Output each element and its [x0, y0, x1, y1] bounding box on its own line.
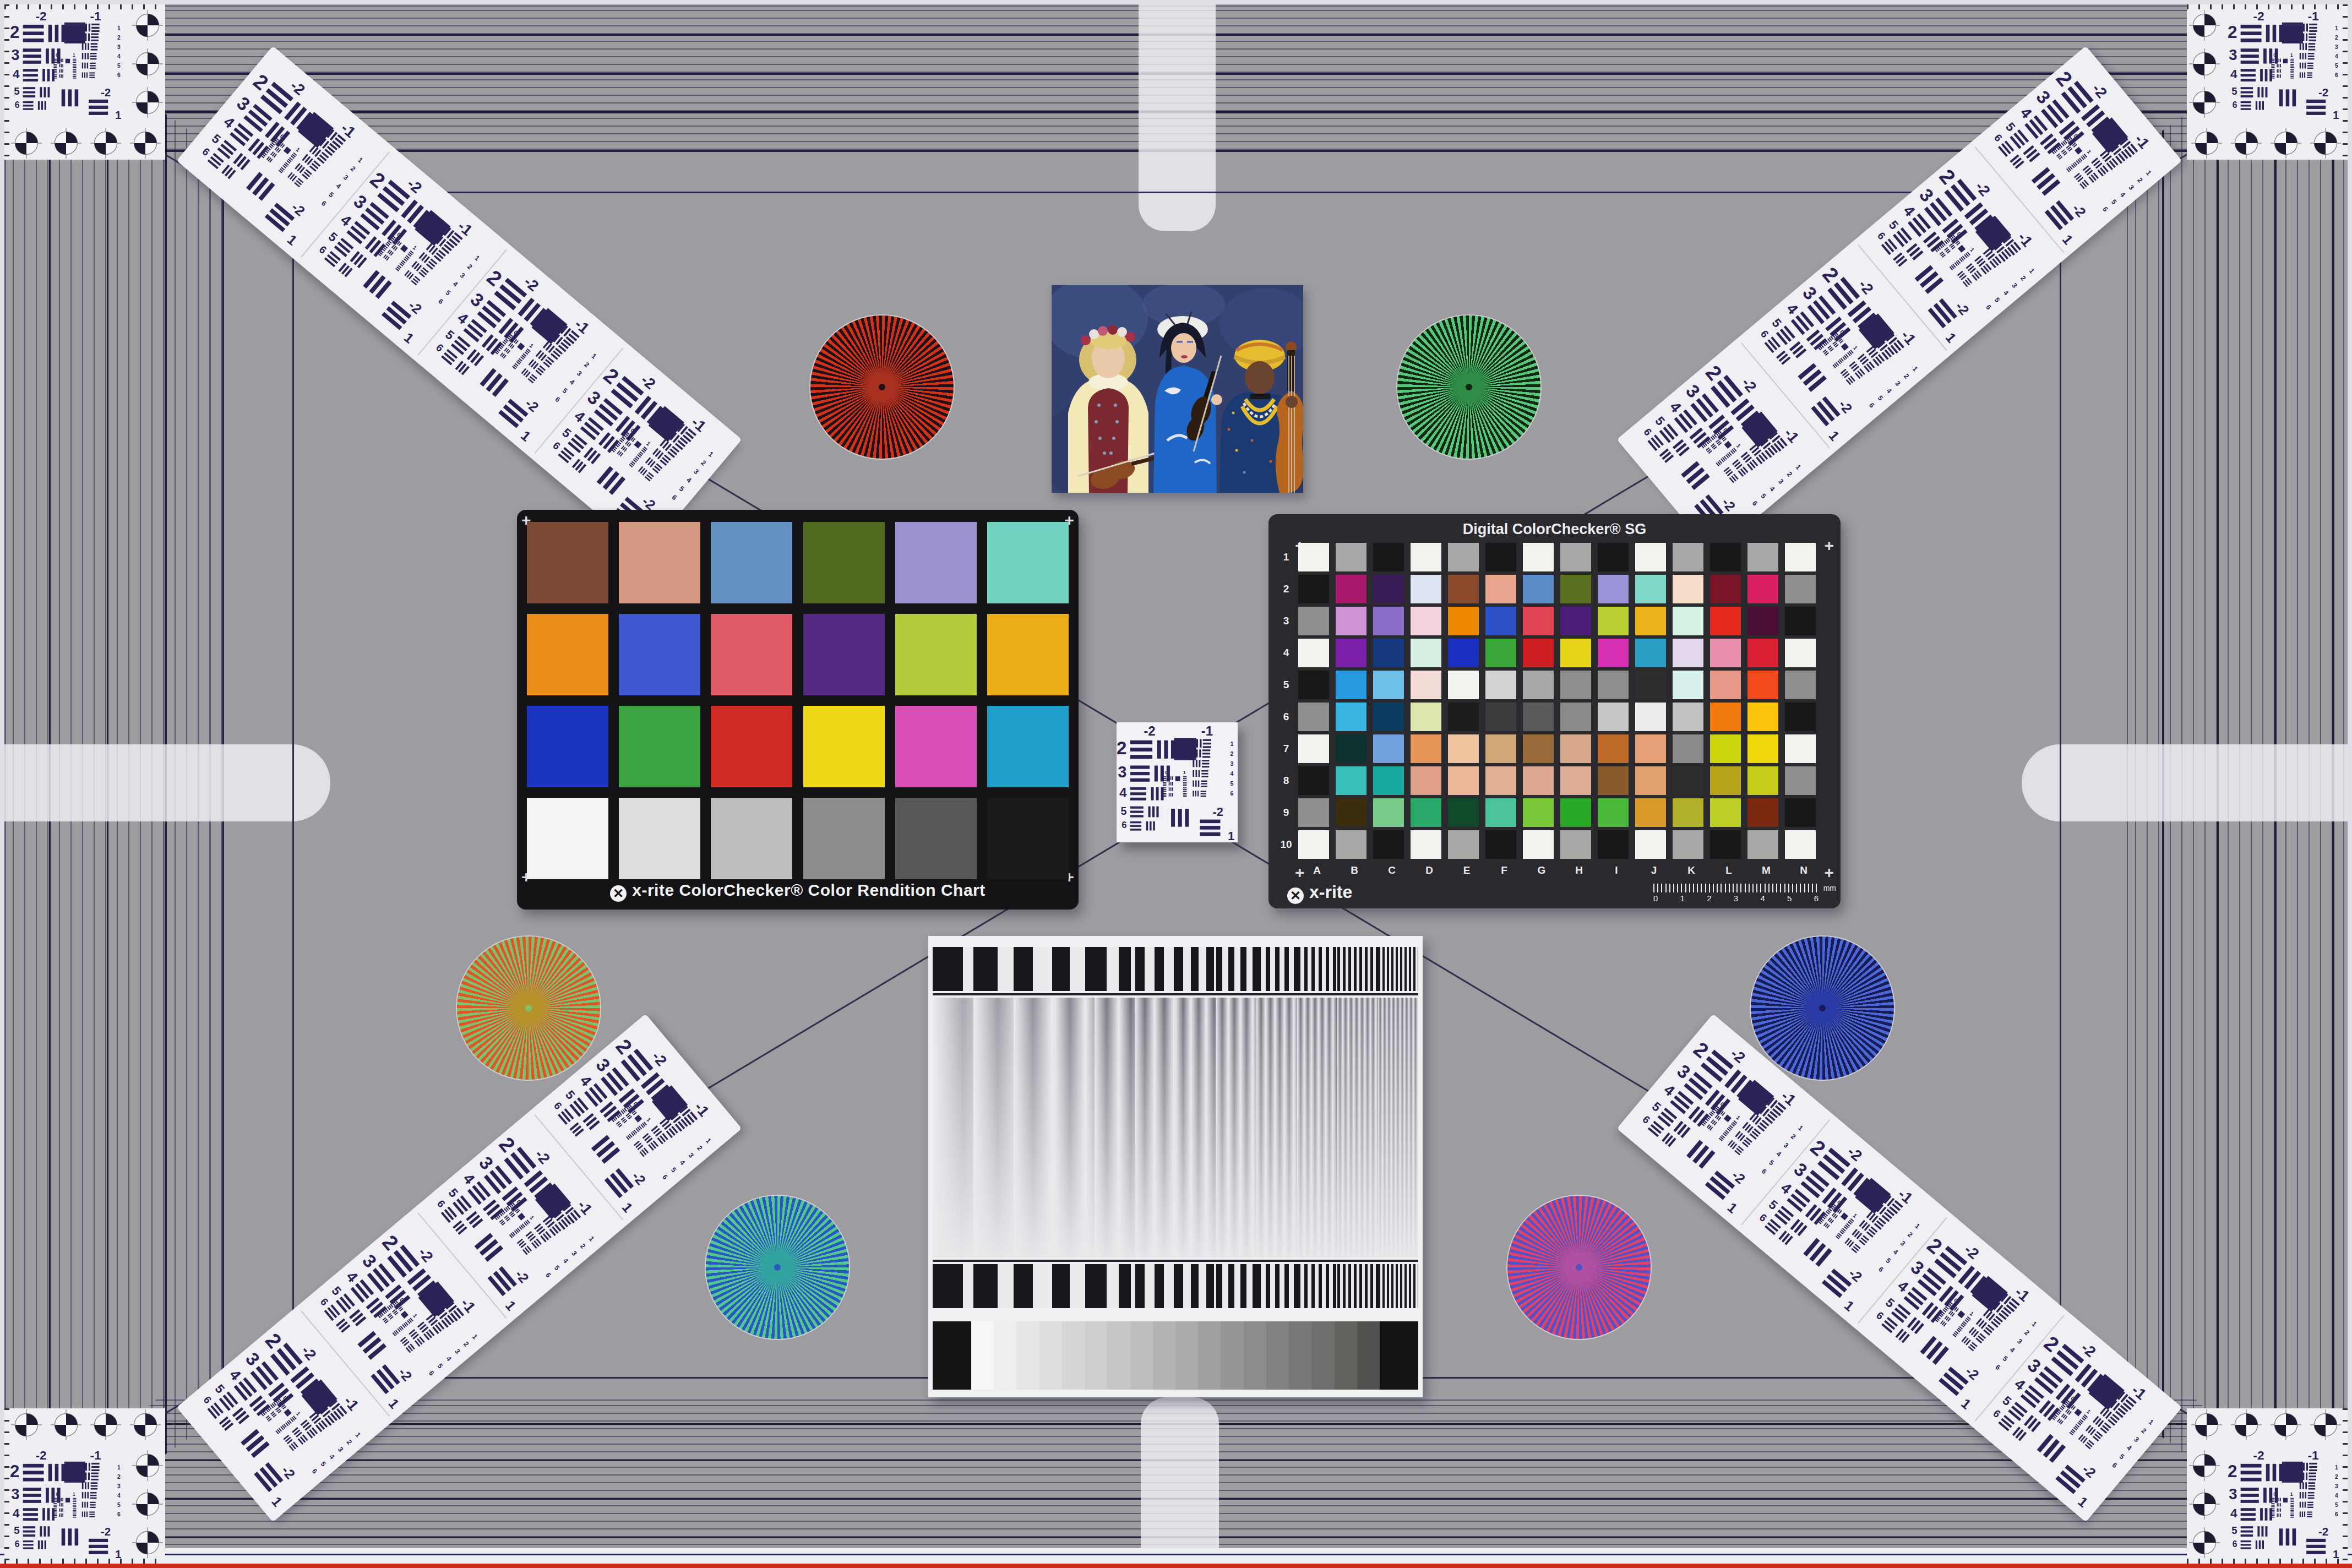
sg-xrite-logo: ✕x-rite — [1287, 882, 1352, 904]
sg-row-2: 2 — [1274, 575, 1822, 603]
sg-patch-D3 — [1411, 607, 1441, 635]
quadrant-fiducial-icon — [90, 1409, 121, 1440]
grayscale-step-13 — [1244, 1321, 1266, 1390]
sg-patch-I5 — [1598, 671, 1629, 699]
cc24-patch-18 — [987, 706, 1069, 787]
sg-patch-I10 — [1598, 830, 1629, 859]
sg-patch-J9 — [1635, 798, 1666, 827]
sweep-bars-bottom — [933, 1264, 1418, 1308]
quadrant-fiducial-icon — [90, 128, 121, 159]
sg-patch-F3 — [1485, 607, 1516, 635]
siemens-star-blue — [1751, 937, 1894, 1080]
sg-patch-M8 — [1747, 766, 1778, 795]
sg-patch-N7 — [1785, 734, 1816, 763]
cc24-patch-22 — [803, 798, 885, 879]
sg-patch-C5 — [1373, 671, 1404, 699]
sg-patch-I6 — [1598, 703, 1629, 731]
cc24-patch-21 — [711, 798, 792, 879]
sweep-segment — [1135, 947, 1176, 991]
sg-patch-G4 — [1523, 639, 1554, 667]
sg-patch-M2 — [1747, 575, 1778, 603]
sg-row-3: 3 — [1274, 607, 1822, 635]
ruler-ticks — [2187, 4, 2348, 9]
sg-patch-E7 — [1448, 734, 1479, 763]
cc24-patch-13 — [527, 706, 608, 787]
sg-patch-E1 — [1448, 543, 1479, 571]
sg-patch-J1 — [1635, 543, 1666, 571]
sg-patch-C7 — [1373, 734, 1404, 763]
sg-patch-K2 — [1673, 575, 1703, 603]
cc24-patch-14 — [619, 706, 700, 787]
sg-patch-H2 — [1560, 575, 1591, 603]
sg-patch-J2 — [1635, 575, 1666, 603]
sg-patch-L9 — [1710, 798, 1741, 827]
fiducial-column — [132, 10, 163, 118]
cc24-patch-5 — [895, 522, 977, 603]
sg-col-label: L — [1710, 864, 1747, 876]
sweep-segment — [1337, 947, 1378, 991]
sg-patch-I8 — [1598, 766, 1629, 795]
sg-patch-D9 — [1411, 798, 1441, 827]
sg-patch-K6 — [1673, 703, 1703, 731]
sg-patch-L3 — [1710, 607, 1741, 635]
ruler-ticks — [4, 4, 9, 160]
grayscale-step-2 — [994, 1321, 1016, 1390]
cc24-patch-23 — [895, 798, 977, 879]
sg-patch-G8 — [1523, 766, 1554, 795]
siemens-star-magenta — [1507, 1196, 1651, 1339]
sg-patch-C8 — [1373, 766, 1404, 795]
test-chart-scene: -2-12345612345601-21 — [0, 0, 2352, 1568]
ruler-number: 6 — [1814, 894, 1819, 903]
sweep-bars-top — [933, 947, 1418, 991]
cc24-patch-6 — [987, 522, 1069, 603]
sg-patch-N1 — [1785, 543, 1816, 571]
usaf-target — [2226, 1447, 2343, 1560]
sg-patch-N3 — [1785, 607, 1816, 635]
sg-patch-C1 — [1373, 543, 1404, 571]
quadrant-fiducial-icon — [132, 48, 163, 79]
siemens-star-teal — [706, 1196, 849, 1339]
sg-patch-I4 — [1598, 639, 1629, 667]
sweep-chart — [928, 936, 1423, 1397]
sweep-segment — [933, 1264, 973, 1308]
sg-patch-M4 — [1747, 639, 1778, 667]
sg-col-label: K — [1673, 864, 1710, 876]
sg-patch-I7 — [1598, 734, 1629, 763]
sg-row-label: 8 — [1274, 775, 1298, 787]
sg-patch-L7 — [1710, 734, 1741, 763]
sg-col-label: I — [1598, 864, 1635, 876]
sg-patch-L6 — [1710, 703, 1741, 731]
sg-col-label: D — [1411, 864, 1448, 876]
sg-col-label: C — [1373, 864, 1411, 876]
quadrant-fiducial-icon — [11, 1409, 42, 1440]
sg-col-label: G — [1523, 864, 1560, 876]
cc24-patch-24 — [987, 798, 1069, 879]
sg-patch-K1 — [1673, 543, 1703, 571]
sg-row-4: 4 — [1274, 639, 1822, 667]
cc24-patch-15 — [711, 706, 792, 787]
sg-row-10: 10 — [1274, 830, 1822, 859]
sg-patch-A3 — [1298, 607, 1329, 635]
sg-row-label: 10 — [1274, 839, 1298, 851]
cc24-patch-4 — [803, 522, 885, 603]
quadrant-fiducial-icon — [130, 128, 161, 159]
sg-patch-B9 — [1336, 798, 1366, 827]
sg-patch-E2 — [1448, 575, 1479, 603]
quadrant-fiducial-icon — [132, 1450, 163, 1481]
sg-col-label: N — [1785, 864, 1822, 876]
sg-row-8: 8 — [1274, 766, 1822, 795]
star-center-dot — [879, 384, 885, 390]
ruler-numbers: 0123456 — [1653, 894, 1819, 903]
sg-col-label: B — [1336, 864, 1373, 876]
quadrant-fiducial-icon — [2189, 48, 2220, 79]
grayscale-step-4 — [1039, 1321, 1062, 1390]
sg-row-1: 1 — [1274, 543, 1822, 571]
ruler-number: 3 — [1734, 894, 1738, 903]
sg-patch-K9 — [1673, 798, 1703, 827]
sg-patch-G5 — [1523, 671, 1554, 699]
ruler-number: 5 — [1787, 894, 1792, 903]
sg-column-labels: ABCDEFGHIJKLMN — [1274, 864, 1822, 876]
sg-patch-A10 — [1298, 830, 1329, 859]
grayscale-step-10 — [1175, 1321, 1198, 1390]
cc24-patch-12 — [987, 614, 1069, 695]
siemens-star-red — [810, 315, 954, 459]
quadrant-fiducial-icon — [11, 128, 42, 159]
sg-patch-B2 — [1336, 575, 1366, 603]
ruler-ticks — [4, 1408, 9, 1564]
ruler-number: 1 — [1680, 894, 1685, 903]
ruler-ticks — [2343, 4, 2348, 160]
fiducial-column — [2189, 1450, 2220, 1558]
sg-col-label: J — [1635, 864, 1673, 876]
sg-row-7: 7 — [1274, 734, 1822, 763]
cc24-patch-16 — [803, 706, 885, 787]
sg-patch-C6 — [1373, 703, 1404, 731]
quadrant-fiducial-icon — [2271, 128, 2301, 159]
quadrant-fiducial-icon — [132, 10, 163, 41]
sg-patch-M9 — [1747, 798, 1778, 827]
sweep-segment — [1014, 947, 1054, 991]
cc24-patch-19 — [527, 798, 608, 879]
quadrant-fiducial-icon — [2231, 128, 2262, 159]
sg-title: Digital ColorChecker® SG — [1268, 521, 1841, 538]
sweep-main-area — [933, 998, 1418, 1257]
fiducial-column — [132, 1450, 163, 1558]
sg-patch-D2 — [1411, 575, 1441, 603]
quadrant-fiducial-icon — [2310, 128, 2341, 159]
sg-col-label: H — [1560, 864, 1598, 876]
sg-patch-H10 — [1560, 830, 1591, 859]
quadrant-fiducial-icon — [132, 1489, 163, 1520]
sg-patch-grid: 12345678910 — [1274, 543, 1822, 862]
quadrant-fiducial-icon — [2189, 87, 2220, 118]
sg-patch-L10 — [1710, 830, 1741, 859]
grayscale-step-wedge — [933, 1321, 1418, 1390]
sg-patch-G9 — [1523, 798, 1554, 827]
sg-patch-M3 — [1747, 607, 1778, 635]
sg-patch-A6 — [1298, 703, 1329, 731]
ruler-ticks — [4, 1559, 165, 1564]
sg-patch-L2 — [1710, 575, 1741, 603]
fiducial-row — [11, 1409, 161, 1440]
quadrant-fiducial-icon — [132, 87, 163, 118]
sg-patch-F4 — [1485, 639, 1516, 667]
sg-row-label: 2 — [1274, 583, 1298, 595]
grayscale-step-17 — [1335, 1321, 1357, 1390]
sg-patch-H8 — [1560, 766, 1591, 795]
sg-patch-B5 — [1336, 671, 1366, 699]
sg-patch-D1 — [1411, 543, 1441, 571]
sweep-segment — [1054, 947, 1095, 991]
sg-patch-A1 — [1298, 543, 1329, 571]
sg-patch-H7 — [1560, 734, 1591, 763]
sg-patch-I2 — [1598, 575, 1629, 603]
sg-patch-N9 — [1785, 798, 1816, 827]
grayscale-black-block — [1380, 1321, 1418, 1390]
registration-cross-icon: + — [1824, 536, 1834, 555]
ruler-ticks — [2187, 1559, 2348, 1564]
sg-patch-L5 — [1710, 671, 1741, 699]
sg-patch-M5 — [1747, 671, 1778, 699]
quadrant-fiducial-icon — [2191, 128, 2222, 159]
ruler-number: 0 — [1653, 894, 1658, 903]
sg-patch-F2 — [1485, 575, 1516, 603]
sg-patch-C3 — [1373, 607, 1404, 635]
sg-patch-G2 — [1523, 575, 1554, 603]
sweep-separator — [933, 1260, 1418, 1262]
sweep-segment — [1297, 1264, 1338, 1308]
sg-patch-J8 — [1635, 766, 1666, 795]
sg-col-label: A — [1298, 864, 1336, 876]
sg-patch-J3 — [1635, 607, 1666, 635]
grayscale-black-block — [933, 1321, 971, 1390]
sg-patch-M10 — [1747, 830, 1778, 859]
quadrant-fiducial-icon — [51, 128, 81, 159]
sg-patch-J4 — [1635, 639, 1666, 667]
sg-patch-H1 — [1560, 543, 1591, 571]
grayscale-step-3 — [1016, 1321, 1039, 1390]
quadrant-fiducial-icon — [2189, 1489, 2220, 1520]
sg-patch-D7 — [1411, 734, 1441, 763]
sg-patch-E4 — [1448, 639, 1479, 667]
sg-patch-F8 — [1485, 766, 1516, 795]
fiducial-row — [2191, 1409, 2341, 1440]
sg-patch-E3 — [1448, 607, 1479, 635]
registration-cross-icon: + — [1824, 863, 1834, 882]
sweep-fade-overlay — [933, 998, 1418, 1257]
sg-patch-D5 — [1411, 671, 1441, 699]
sweep-segment — [1256, 947, 1297, 991]
sweep-segment — [933, 947, 973, 991]
ruler-ticks — [2343, 1408, 2348, 1564]
fiducial-row — [11, 128, 161, 159]
usaf-target — [9, 1447, 126, 1560]
corner-target-bottom-right — [2187, 1408, 2348, 1564]
sg-patch-J7 — [1635, 734, 1666, 763]
sg-patch-F5 — [1485, 671, 1516, 699]
cc24-patch-11 — [895, 614, 977, 695]
sg-patch-J6 — [1635, 703, 1666, 731]
sweep-segment — [1054, 1264, 1095, 1308]
sweep-segment — [1216, 947, 1257, 991]
sg-row-9: 9 — [1274, 798, 1822, 827]
sg-patch-H5 — [1560, 671, 1591, 699]
sg-patch-I9 — [1598, 798, 1629, 827]
sg-patch-E6 — [1448, 703, 1479, 731]
sg-patch-H9 — [1560, 798, 1591, 827]
star-center-dot — [774, 1264, 781, 1271]
sg-row-6: 6 — [1274, 703, 1822, 731]
sg-patch-M6 — [1747, 703, 1778, 731]
cc24-patch-9 — [711, 614, 792, 695]
quadrant-fiducial-icon — [132, 1527, 163, 1558]
quadrant-fiducial-icon — [130, 1409, 161, 1440]
sg-patch-K10 — [1673, 830, 1703, 859]
quadrant-fiducial-icon — [2189, 1527, 2220, 1558]
sg-patch-F1 — [1485, 543, 1516, 571]
grayscale-step-18 — [1357, 1321, 1380, 1390]
sg-row-label: 9 — [1274, 807, 1298, 819]
sg-patch-N8 — [1785, 766, 1816, 795]
sg-mm-ruler: 0123456 mm — [1653, 884, 1819, 903]
quadrant-fiducial-icon — [2231, 1409, 2262, 1440]
sg-patch-J10 — [1635, 830, 1666, 859]
sg-patch-D8 — [1411, 766, 1441, 795]
xrite-logo-icon: ✕ — [610, 885, 627, 902]
sg-patch-D6 — [1411, 703, 1441, 731]
sg-patch-D10 — [1411, 830, 1441, 859]
sg-patch-A8 — [1298, 766, 1329, 795]
corner-target-top-left — [4, 4, 165, 160]
grayscale-step-8 — [1130, 1321, 1153, 1390]
star-center-dot — [1819, 1005, 1826, 1011]
cc24-patch-8 — [619, 614, 700, 695]
sg-patch-A7 — [1298, 734, 1329, 763]
sg-row-label: 5 — [1274, 679, 1298, 691]
sweep-segment — [1175, 947, 1216, 991]
sg-patch-F10 — [1485, 830, 1516, 859]
sg-patch-H6 — [1560, 703, 1591, 731]
star-center-dot — [525, 1005, 532, 1011]
grayscale-step-14 — [1266, 1321, 1289, 1390]
sg-patch-N10 — [1785, 830, 1816, 859]
musicians-photo-illustration — [1052, 285, 1303, 493]
sg-patch-L1 — [1710, 543, 1741, 571]
sweep-segment — [1378, 1264, 1419, 1308]
grayscale-step-16 — [1311, 1321, 1334, 1390]
center-usaf-target — [1117, 722, 1238, 842]
sg-patch-B10 — [1336, 830, 1366, 859]
corner-target-top-right — [2187, 4, 2348, 160]
sg-patch-G10 — [1523, 830, 1554, 859]
sg-patch-E9 — [1448, 798, 1479, 827]
sg-patch-N5 — [1785, 671, 1816, 699]
grayscale-step-7 — [1107, 1321, 1130, 1390]
sweep-segment — [1095, 947, 1135, 991]
sg-patch-G3 — [1523, 607, 1554, 635]
sweep-segment — [973, 947, 1014, 991]
sweep-segment — [1378, 947, 1419, 991]
sg-patch-D4 — [1411, 639, 1441, 667]
cc24-patch-grid — [527, 522, 1069, 879]
sg-patch-A4 — [1298, 639, 1329, 667]
sg-patch-C4 — [1373, 639, 1404, 667]
sweep-segment — [1256, 1264, 1297, 1308]
sg-col-label: F — [1485, 864, 1523, 876]
sg-patch-L8 — [1710, 766, 1741, 795]
sg-patch-B4 — [1336, 639, 1366, 667]
cc24-patch-7 — [527, 614, 608, 695]
star-center-dot — [1576, 1264, 1582, 1271]
grayscale-step-12 — [1221, 1321, 1243, 1390]
usaf-target — [9, 8, 126, 121]
sg-row-label: 7 — [1274, 743, 1298, 755]
sg-row-label: 6 — [1274, 711, 1298, 723]
sweep-segment — [1175, 1264, 1216, 1308]
quadrant-fiducial-icon — [2310, 1409, 2341, 1440]
grayscale-step-9 — [1153, 1321, 1175, 1390]
grayscale-step-15 — [1289, 1321, 1311, 1390]
quadrant-fiducial-icon — [2271, 1409, 2301, 1440]
sg-patch-B7 — [1336, 734, 1366, 763]
ruler-number: 4 — [1760, 894, 1765, 903]
sg-patch-K7 — [1673, 734, 1703, 763]
sg-patch-B3 — [1336, 607, 1366, 635]
ruler-ticks — [4, 4, 165, 9]
sweep-segment — [1014, 1264, 1054, 1308]
sg-col-label: M — [1747, 864, 1785, 876]
usaf-target — [1117, 722, 1238, 842]
cc24-caption-text: x-rite ColorChecker® Color Rendition Cha… — [632, 881, 986, 899]
sg-patch-K5 — [1673, 671, 1703, 699]
cc24-patch-2 — [619, 522, 700, 603]
sg-patch-F7 — [1485, 734, 1516, 763]
quadrant-fiducial-icon — [2189, 10, 2220, 41]
usaf-target — [2226, 8, 2343, 121]
sweep-segment — [1095, 1264, 1135, 1308]
sg-patch-K8 — [1673, 766, 1703, 795]
siemens-star-green — [1397, 315, 1540, 459]
grayscale-step-5 — [1062, 1321, 1085, 1390]
ruler-number: 2 — [1707, 894, 1711, 903]
sg-patch-H3 — [1560, 607, 1591, 635]
cc24-patch-1 — [527, 522, 608, 603]
sg-patch-L4 — [1710, 639, 1741, 667]
siemens-star-gold — [457, 937, 600, 1080]
sweep-segment — [1297, 947, 1338, 991]
sg-row-label: 3 — [1274, 615, 1298, 627]
sg-logo-text: x-rite — [1309, 882, 1352, 902]
sg-patch-C9 — [1373, 798, 1404, 827]
xrite-logo-icon: ✕ — [1287, 888, 1304, 904]
quadrant-fiducial-icon — [2191, 1409, 2222, 1440]
ruler-scale — [1653, 884, 1819, 892]
cc24-patch-20 — [619, 798, 700, 879]
cc24-patch-3 — [711, 522, 792, 603]
sg-patch-K3 — [1673, 607, 1703, 635]
sg-patch-C10 — [1373, 830, 1404, 859]
sg-patch-F9 — [1485, 798, 1516, 827]
sg-patch-B6 — [1336, 703, 1366, 731]
cc24-patch-17 — [895, 706, 977, 787]
cc24-caption: ✕x-rite ColorChecker® Color Rendition Ch… — [517, 881, 1079, 902]
fiducial-row — [2191, 128, 2341, 159]
quadrant-fiducial-icon — [51, 1409, 81, 1440]
